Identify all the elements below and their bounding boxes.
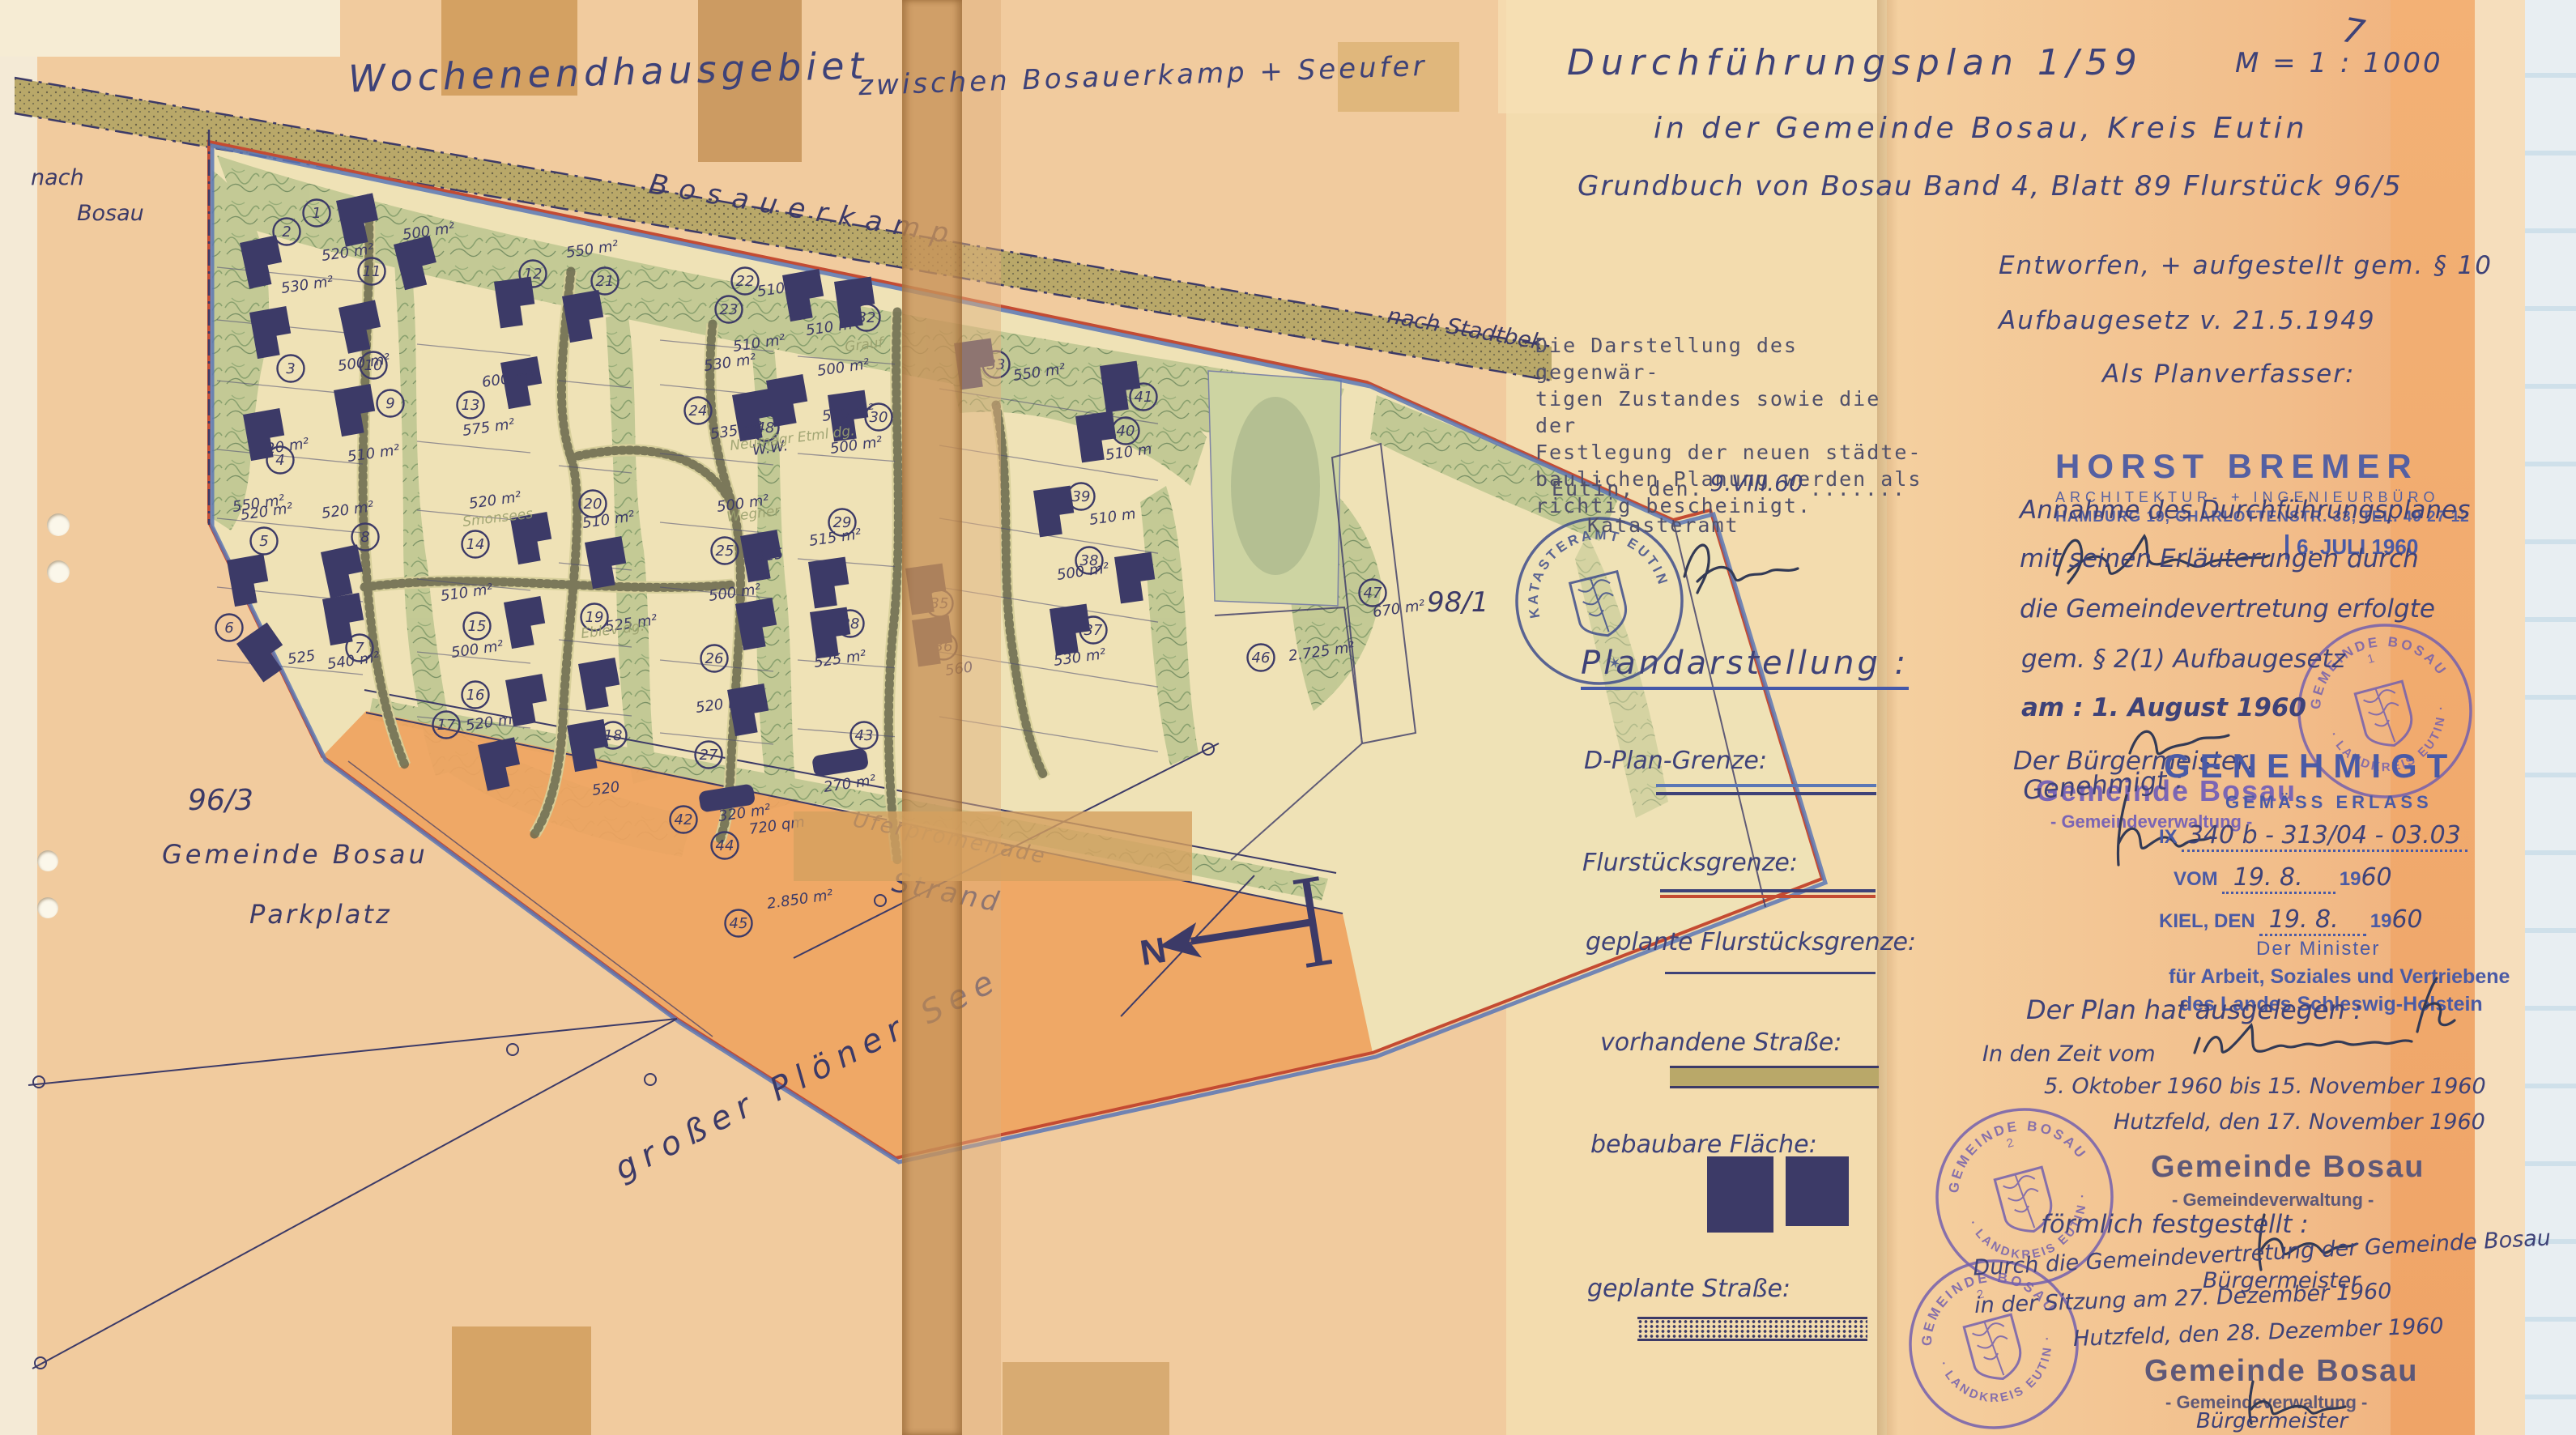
adoption-line: mit seinen Erläuterungen durch [2020, 544, 2419, 573]
legend-item-strasse: vorhandene Straße: [1600, 1028, 1842, 1057]
label-nach-bosau2: Bosau [77, 201, 144, 226]
label-parkplatz: Parkplatz [249, 899, 392, 930]
legend-item-flur: Flurstücksgrenze: [1582, 849, 1798, 877]
plot-number: 27 [700, 747, 718, 764]
meadow [1208, 371, 1341, 606]
display-initials [2393, 972, 2474, 1045]
plot-number: 8 [360, 529, 369, 546]
approval-stamp-title: GENEHMIGT [2164, 747, 2457, 786]
plot-number: 22 [736, 273, 755, 290]
planner-line2: Aufbaugesetz v. 21.5.1949 [1999, 306, 2376, 335]
cert-line: Die Darstellung des gegenwär- [1535, 332, 1924, 385]
planner-line3: Als Planverfasser: [2102, 360, 2355, 389]
plot-number: 40 [1117, 423, 1135, 440]
label-96-3: 96/3 [188, 784, 253, 817]
plot-number: 3 [286, 360, 295, 377]
plot-number: 16 [466, 687, 485, 704]
plot-number: 39 [1072, 488, 1091, 505]
adoption-line: Annahme des Durchführungsplanes [2020, 496, 2470, 525]
punch-hole [37, 850, 58, 871]
plot-number: 13 [462, 397, 480, 414]
tape-fold-shadow [962, 0, 1001, 1435]
vom-label: VOM [2174, 868, 2218, 890]
plot-number: 46 [1252, 649, 1271, 666]
approval-ref-line: IX 340 b - 313/04 - 03.03 [2159, 821, 2467, 850]
legend-item-dplan: D-Plan-Grenze: [1584, 747, 1767, 775]
plot-number: 44 [716, 837, 734, 854]
cert-date-line: Eutin, den. 9.VIII.60 ....... [1552, 475, 1906, 501]
kataster-signature [1668, 528, 1814, 601]
approval-stamp-sub: GEMÄSS ERLASS [2225, 792, 2433, 813]
plot-number: 2 [282, 224, 291, 241]
ref-prefix: IX [2159, 826, 2178, 848]
plot-number: 25 [716, 543, 734, 560]
display-line2: In den Zeit vom [1982, 1041, 2156, 1067]
tape-vertical-fold [902, 0, 962, 1435]
punch-hole [47, 560, 70, 583]
plot-number: 5 [259, 533, 268, 550]
plot-number: 11 [363, 263, 381, 280]
plot-number: 41 [1135, 389, 1153, 406]
tape-bottom-1 [452, 1326, 591, 1435]
legend-symbol-dplan [1656, 784, 1876, 795]
plot-number: 14 [466, 536, 485, 553]
display-line3: 5. Oktober 1960 bis 15. November 1960 [2044, 1074, 2486, 1099]
approval-vom-line: VOM 19. 8. 1960 [2174, 863, 2392, 892]
approval-kiel-line: KIEL, DEN 19. 8. 1960 [2159, 905, 2423, 934]
map-scale: M = 1 : 1000 [2235, 47, 2443, 79]
legend-item-bebaubar: bebaubare Fläche: [1590, 1131, 1817, 1159]
kiel-year-hand: 60 [2391, 905, 2422, 934]
cert-place: Eutin, den. [1552, 477, 1704, 500]
punch-hole [47, 513, 70, 536]
plot-number: 42 [675, 811, 693, 828]
legend-symbol-strasse [1670, 1066, 1879, 1088]
punch-hole [37, 897, 58, 918]
plan-title-line3: Grundbuch von Bosau Band 4, Blatt 89 Flu… [1578, 170, 2403, 202]
legend-heading: Plandarstellung : [1581, 645, 1909, 682]
adoption-line: gem. § 2(1) Aufbaugesetz [2021, 645, 2345, 674]
legend-symbol-gepl-flur [1665, 972, 1876, 974]
cert-date-hand: 9.VIII.60 [1710, 470, 1803, 496]
plot-number: 6 [224, 620, 233, 637]
kiel-hand: 19. 8. [2259, 905, 2366, 936]
plot-number: 21 [596, 273, 615, 290]
cert-dots: ....... [1810, 477, 1906, 500]
planner-line1: Entworfen, + aufgestellt gem. § 10 [1999, 251, 2493, 280]
plot-number: 15 [468, 618, 487, 635]
plan-title: Durchführungsplan 1/59 [1567, 42, 2144, 83]
plot-number: 24 [689, 402, 708, 419]
legend-item-gepl-strasse: geplante Straße: [1587, 1275, 1790, 1303]
gemeinde-stamp-2: Gemeinde Bosau - Gemeindeverwaltung - [2151, 1150, 2425, 1211]
kiel-year-print: 19 [2370, 910, 2392, 932]
plot-number: 17 [437, 717, 456, 734]
plot-number: 43 [855, 727, 874, 744]
label-nach-bosau: nach [31, 165, 84, 190]
minister-line1: Der Minister [2256, 938, 2380, 960]
svg-text:1: 1 [2366, 651, 2376, 666]
legend-symbol-gepl-strasse [1637, 1317, 1867, 1341]
svg-text:2: 2 [2005, 1136, 2015, 1152]
resolution-line1: förmlich festgestellt : [2041, 1210, 2309, 1239]
plot-number: 9 [385, 395, 394, 412]
plot-number: 1 [312, 205, 321, 222]
vom-hand: 19. 8. [2222, 863, 2335, 894]
display-line1: Der Plan hat ausgelegen : [2026, 994, 2362, 1025]
legend-symbol-bebaubar [1707, 1156, 1849, 1236]
label-gemeinde-bosau: Gemeinde Bosau [162, 839, 428, 870]
plot-number: 23 [720, 301, 739, 318]
plan-title-line2: in der Gemeinde Bosau, Kreis Eutin [1654, 112, 2309, 145]
vom-year-hand: 60 [2361, 863, 2391, 892]
vom-year-print: 19 [2340, 868, 2361, 890]
cert-line: tigen Zustandes sowie die der [1535, 385, 1924, 439]
plot-number: 26 [705, 650, 724, 667]
plot-number: 45 [730, 915, 748, 932]
kiel-label: KIEL, DEN [2159, 910, 2255, 932]
ref-hand: 340 b - 313/04 - 03.03 [2182, 821, 2467, 852]
firm-name: HORST BREMER [2055, 447, 2470, 486]
resolution-mayor: Bürgermeister [2196, 1409, 2348, 1433]
legend-item-gepl-flur: geplante Flurstücksgrenze: [1586, 928, 1916, 956]
adoption-line: die Gemeindevertretung erfolgte [2020, 594, 2435, 624]
label-98-1: 98/1 [1427, 586, 1488, 619]
document-page: 1520 m²2530 m²3520 m²4520 m²5550 m²67540… [0, 0, 2576, 1435]
tape-bottom-2 [1003, 1362, 1169, 1435]
plot-number: 47 [1364, 585, 1382, 602]
cert-line: Festlegung der neuen städte- [1535, 439, 1924, 466]
display-line4: Hutzfeld, den 17. November 1960 [2114, 1109, 2485, 1135]
legend-symbol-flur [1660, 889, 1876, 898]
plot-number: 4 [275, 452, 284, 469]
tape-horizontal [794, 811, 1192, 881]
plot-number: 20 [584, 496, 602, 513]
